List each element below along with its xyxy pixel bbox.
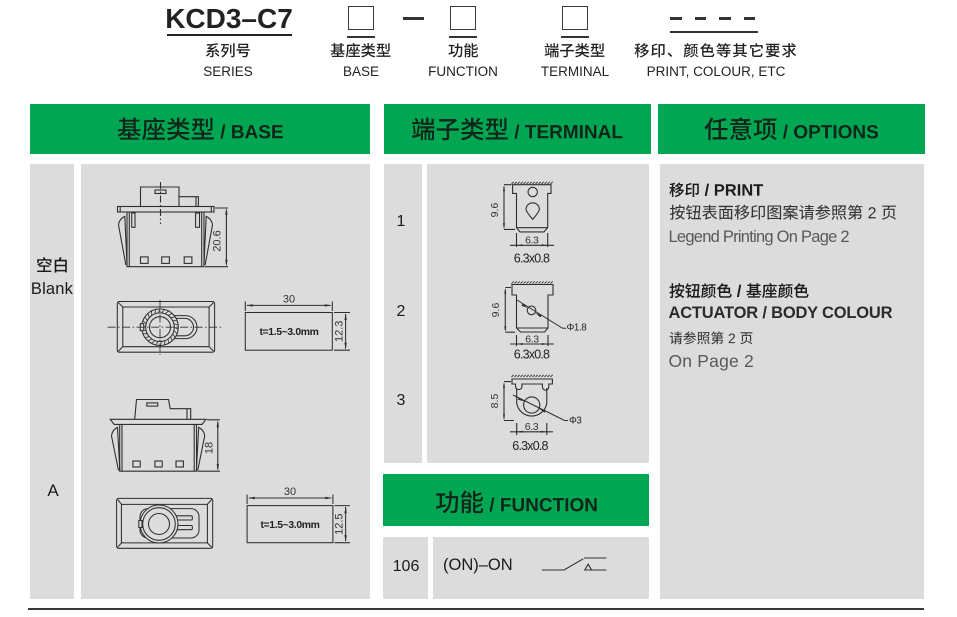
svg-text:Φ3: Φ3 (569, 416, 582, 427)
svg-text:8.5: 8.5 (489, 394, 501, 409)
svg-text:t=1.5~3.0mm: t=1.5~3.0mm (260, 520, 319, 531)
svg-text:12.5: 12.5 (333, 513, 345, 534)
svg-text:6.3x0.8: 6.3x0.8 (512, 439, 548, 453)
svg-text:20.6: 20.6 (212, 230, 224, 251)
svg-text:9.6: 9.6 (490, 303, 502, 318)
svg-text:6.3x0.8: 6.3x0.8 (514, 252, 550, 266)
svg-text:6.3: 6.3 (525, 333, 539, 345)
svg-text:6.3: 6.3 (525, 234, 539, 246)
svg-text:9.6: 9.6 (489, 203, 501, 218)
svg-text:30: 30 (284, 486, 296, 498)
svg-text:30: 30 (283, 294, 295, 306)
svg-text:6.3x0.8: 6.3x0.8 (514, 348, 550, 362)
svg-text:6.3: 6.3 (525, 421, 539, 433)
svg-text:18: 18 (204, 442, 216, 454)
svg-text:12.3: 12.3 (333, 321, 345, 342)
svg-text:t=1.5~3.0mm: t=1.5~3.0mm (259, 327, 318, 338)
svg-text:Φ1.8: Φ1.8 (567, 323, 588, 334)
